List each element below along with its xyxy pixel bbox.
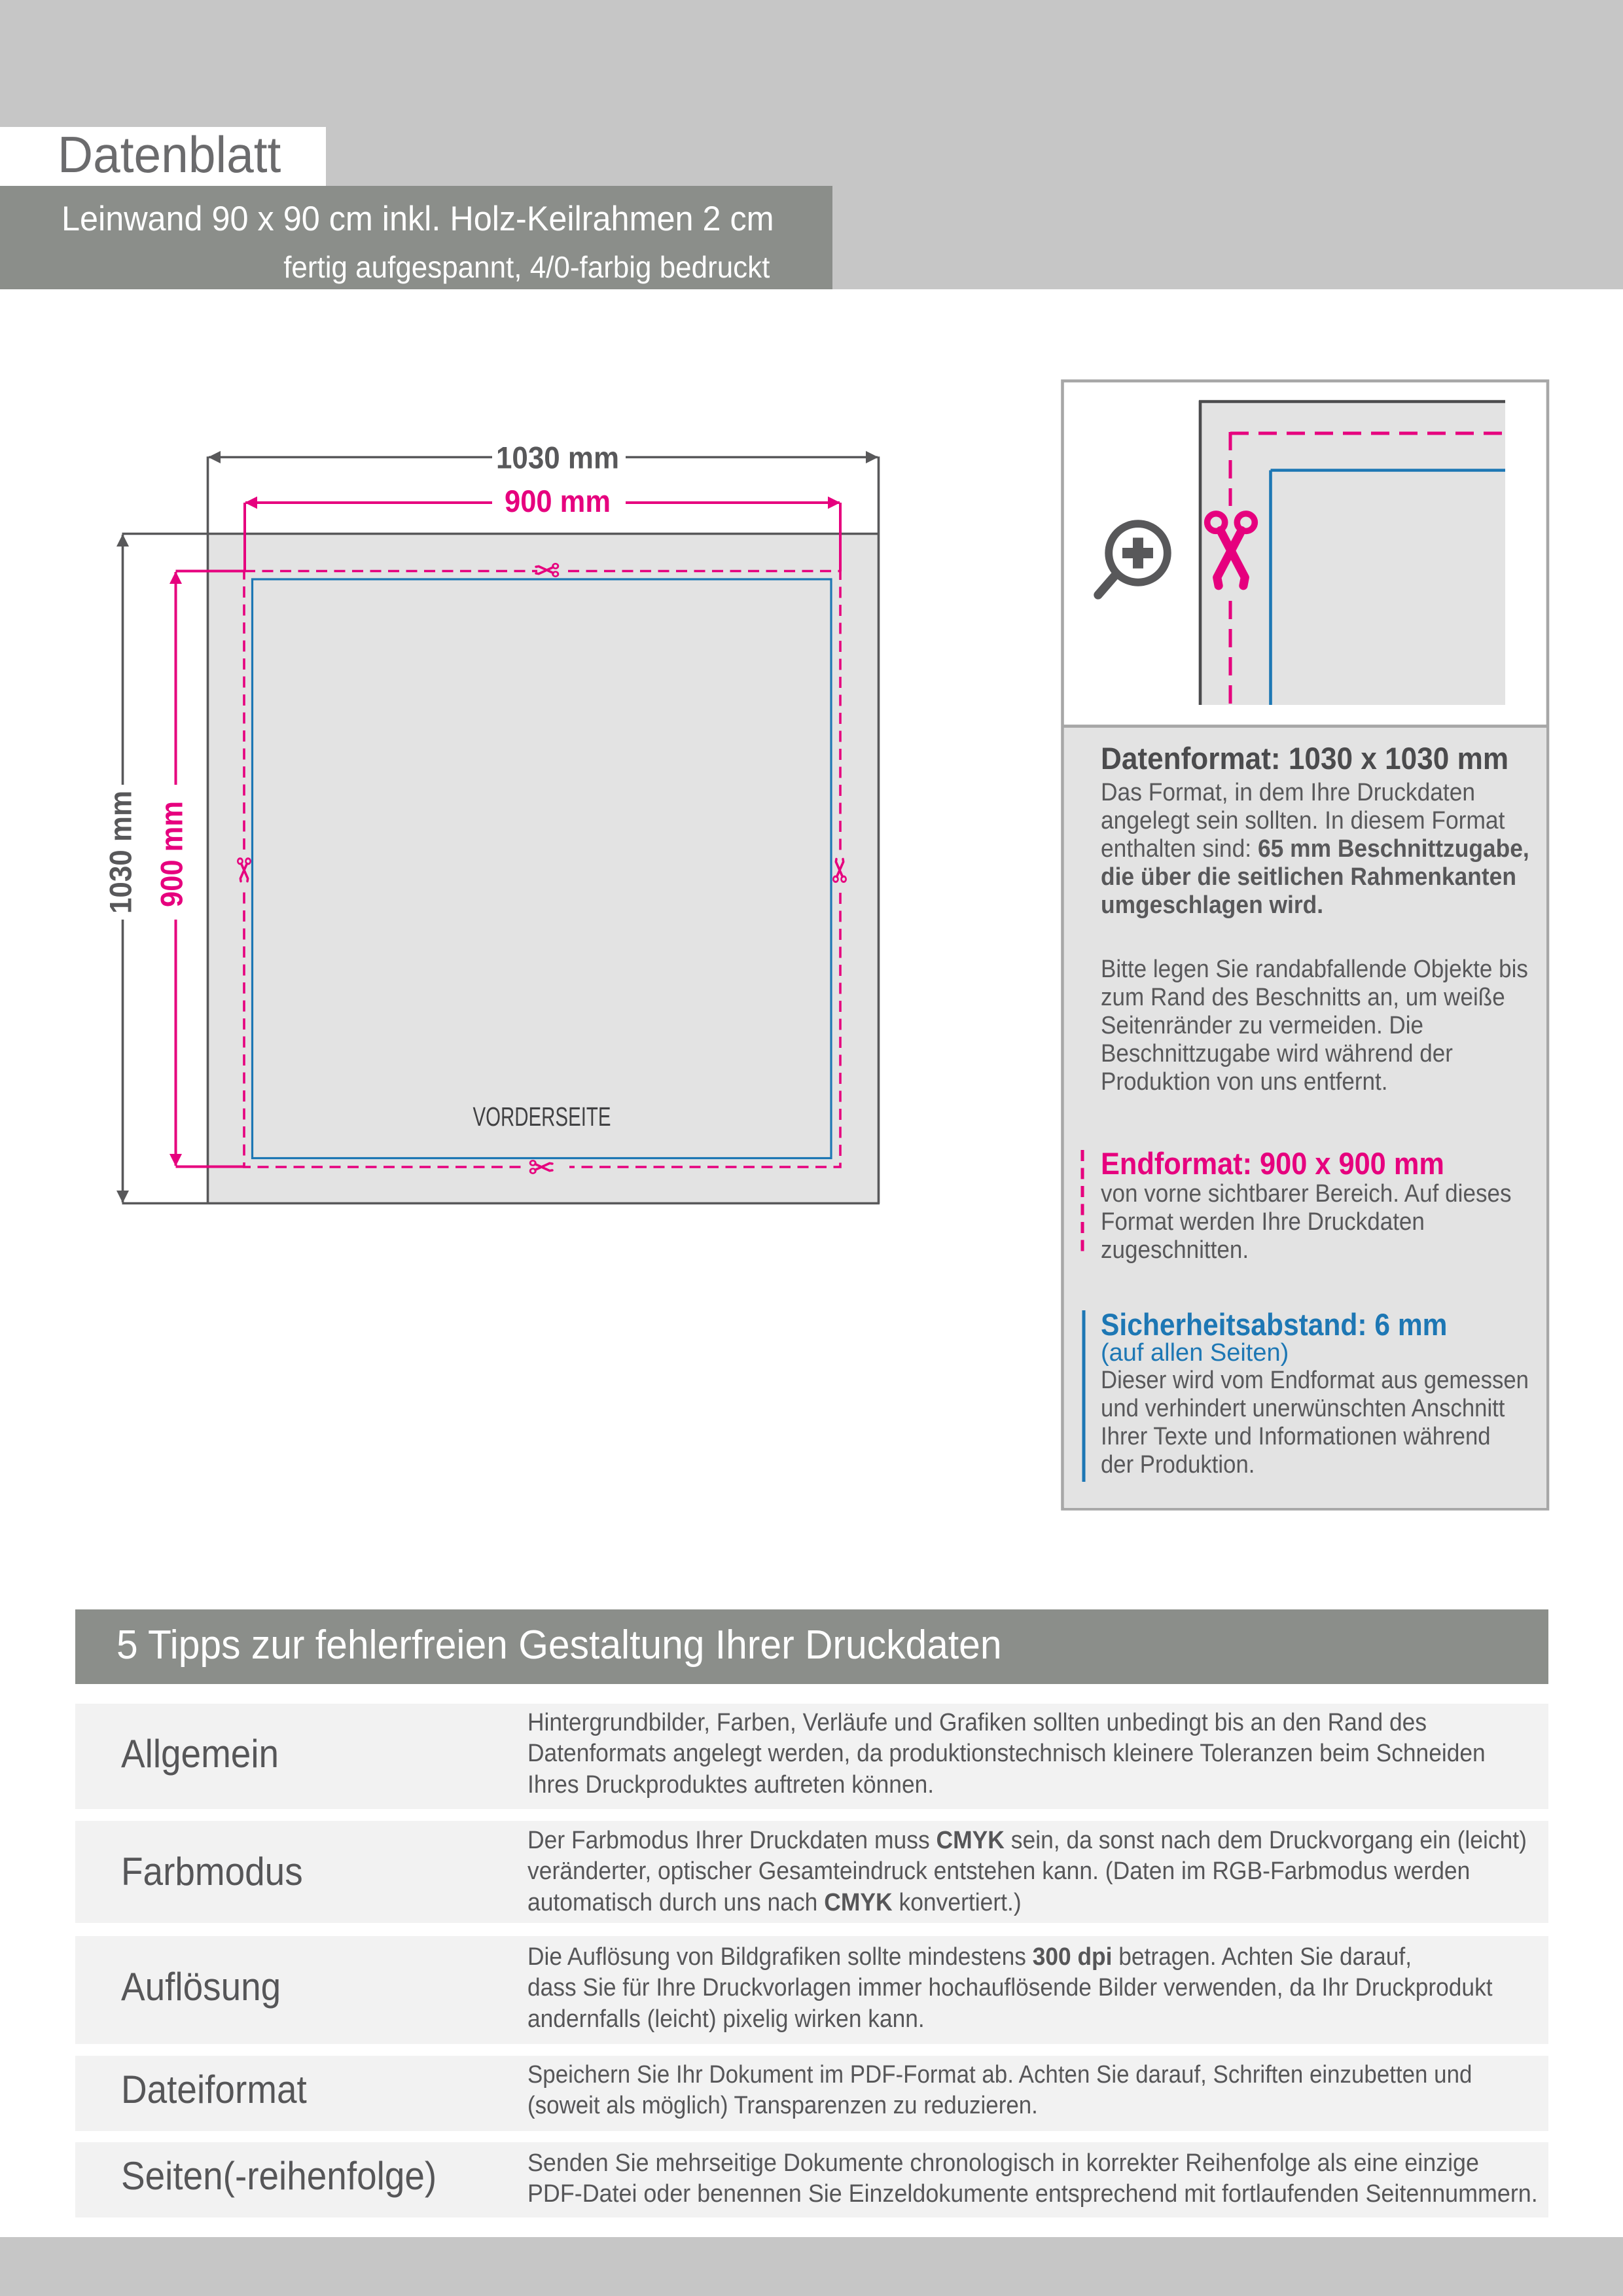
svg-text:1030 mm: 1030 mm — [496, 440, 619, 475]
svg-text:VORDERSEITE: VORDERSEITE — [473, 1102, 611, 1132]
svg-text:900 mm: 900 mm — [154, 801, 189, 907]
svg-text:900 mm: 900 mm — [505, 484, 611, 518]
svg-text:1030 mm: 1030 mm — [103, 791, 138, 914]
